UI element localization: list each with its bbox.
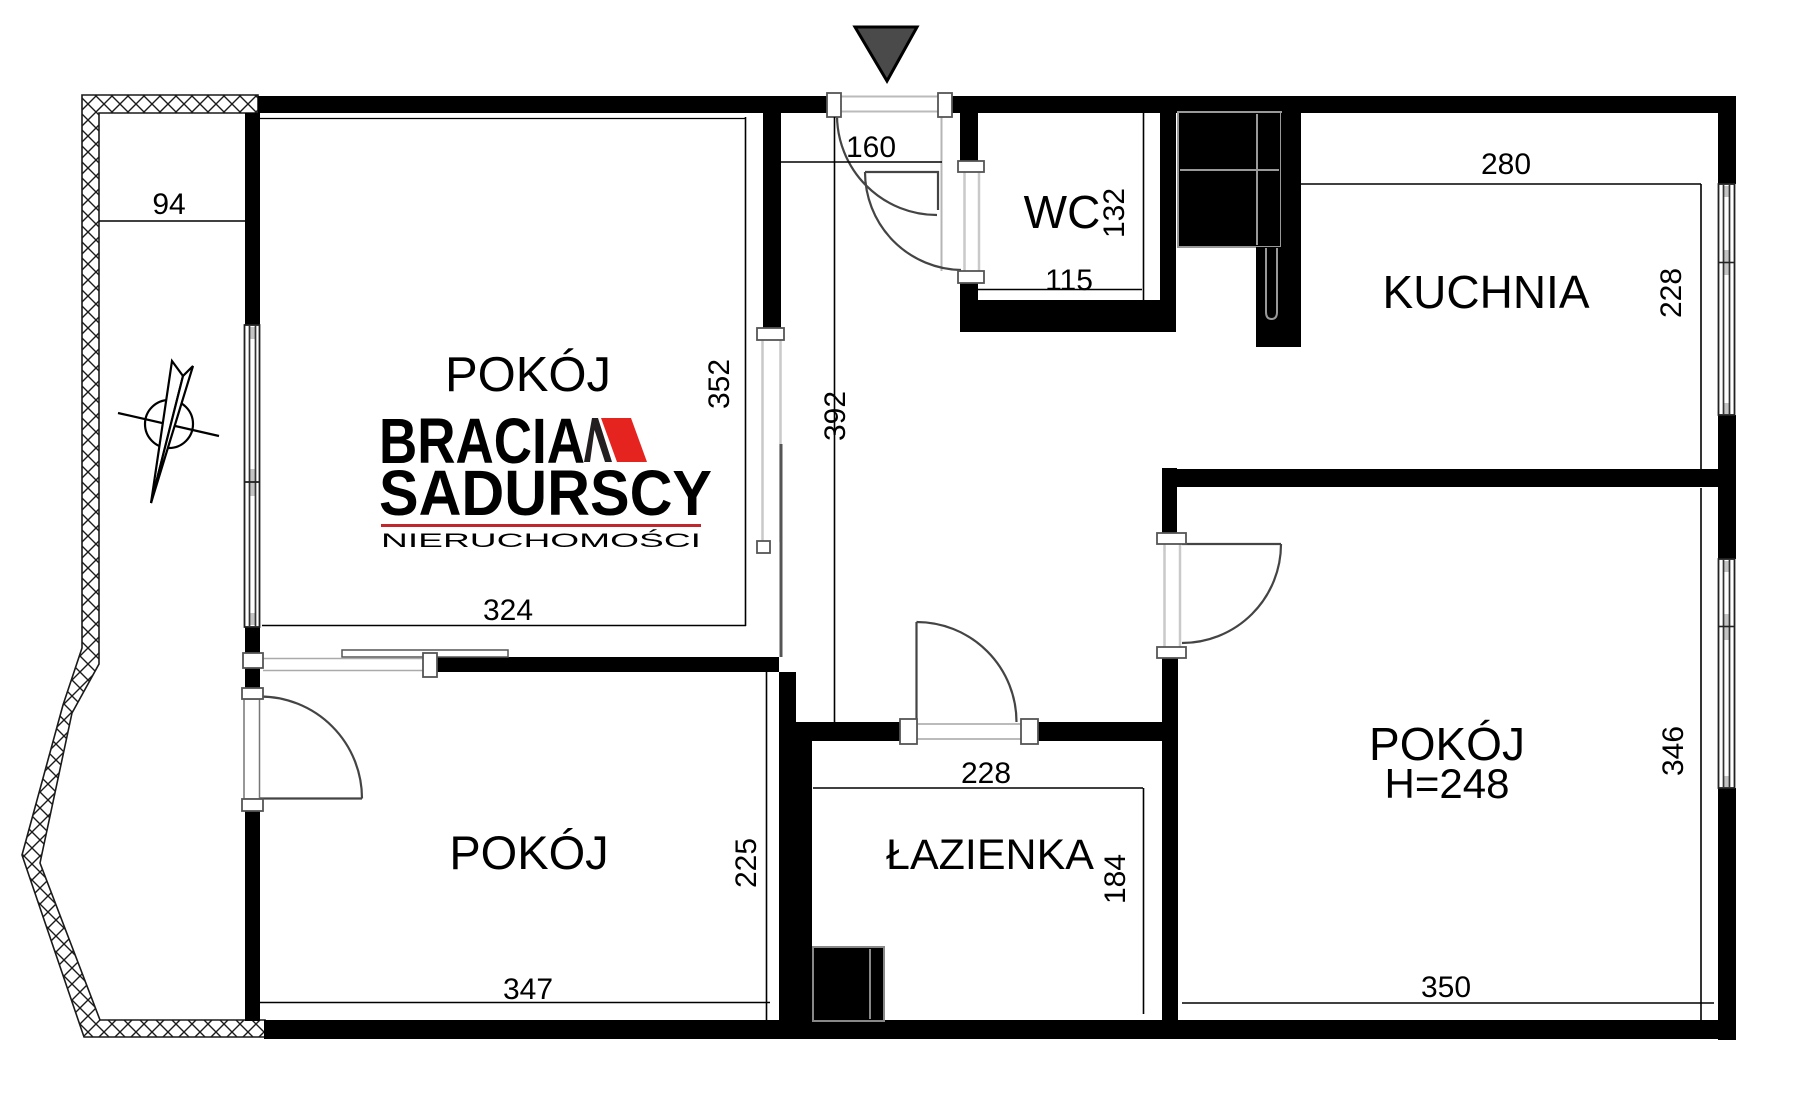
svg-text:347: 347	[503, 973, 553, 1006]
svg-text:280: 280	[1481, 148, 1531, 181]
svg-text:H=248: H=248	[1385, 760, 1510, 807]
svg-text:132: 132	[1098, 188, 1131, 238]
svg-text:352: 352	[703, 359, 736, 409]
svg-text:225: 225	[730, 838, 763, 888]
svg-text:SADURSCY: SADURSCY	[379, 457, 712, 529]
svg-text:228: 228	[961, 757, 1011, 790]
svg-text:NIERUCHOMOŚCI: NIERUCHOMOŚCI	[381, 530, 701, 552]
svg-text:POKÓJ: POKÓJ	[449, 826, 608, 879]
svg-text:184: 184	[1099, 854, 1132, 904]
svg-text:94: 94	[152, 188, 185, 221]
svg-text:324: 324	[483, 594, 533, 627]
svg-text:KUCHNIA: KUCHNIA	[1382, 266, 1589, 318]
svg-text:350: 350	[1421, 971, 1471, 1004]
svg-text:WC: WC	[1024, 186, 1101, 238]
svg-text:ŁAZIENKA: ŁAZIENKA	[886, 831, 1094, 879]
svg-text:115: 115	[1045, 264, 1093, 297]
svg-text:346: 346	[1657, 726, 1690, 776]
svg-text:392: 392	[819, 391, 852, 441]
svg-text:160: 160	[846, 131, 896, 164]
svg-text:228: 228	[1655, 268, 1688, 318]
svg-text:POKÓJ: POKÓJ	[445, 348, 611, 402]
